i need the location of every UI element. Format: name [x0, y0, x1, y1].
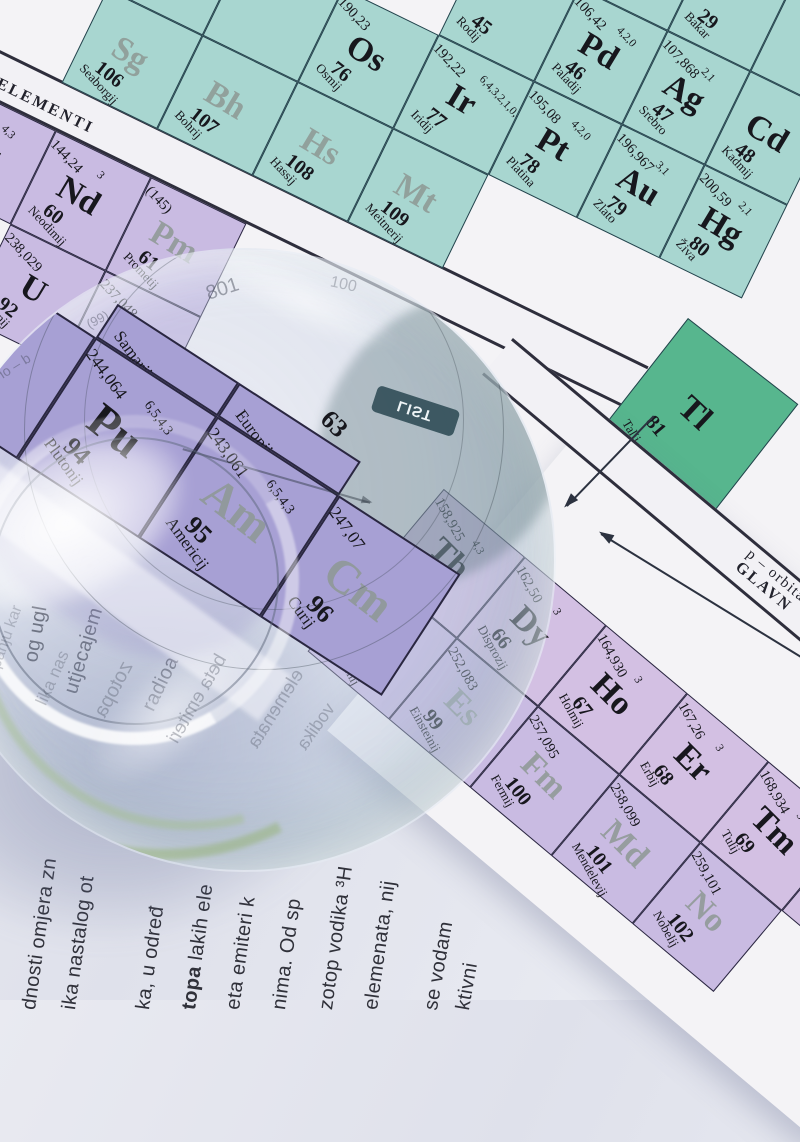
element-oxidation-states: 3 [794, 811, 800, 822]
element-mass: 144,24 [46, 137, 86, 178]
list-label-text: LIST [396, 397, 436, 424]
element-oxidation-states: 3 [632, 674, 645, 685]
book-text-line: ktivni [452, 961, 483, 1012]
element-oxidation-states: 3 [713, 742, 726, 753]
element-oxidation-states: 3 [551, 606, 564, 617]
book-text-line: elemenata, nij [360, 879, 401, 1011]
book-text-line: nima. Od sp [268, 897, 306, 1011]
element-oxidation-states: 3 [94, 170, 107, 182]
element-mass: 167,26 [674, 700, 708, 743]
element-mass: (145) [141, 183, 175, 218]
element-symbol: Er [666, 736, 720, 790]
element-symbol: Ho [583, 666, 641, 724]
book-text-line: zotop vodika ³H [315, 864, 358, 1011]
element-mass: 190,23 [334, 0, 374, 35]
photo-periodic-table-with-flask: { "colors": { "teal": "#a8d6d0", "tealLi… [0, 0, 800, 1000]
book-text-line: se vodam [420, 919, 458, 1012]
element-symbol: Tl [671, 388, 720, 438]
